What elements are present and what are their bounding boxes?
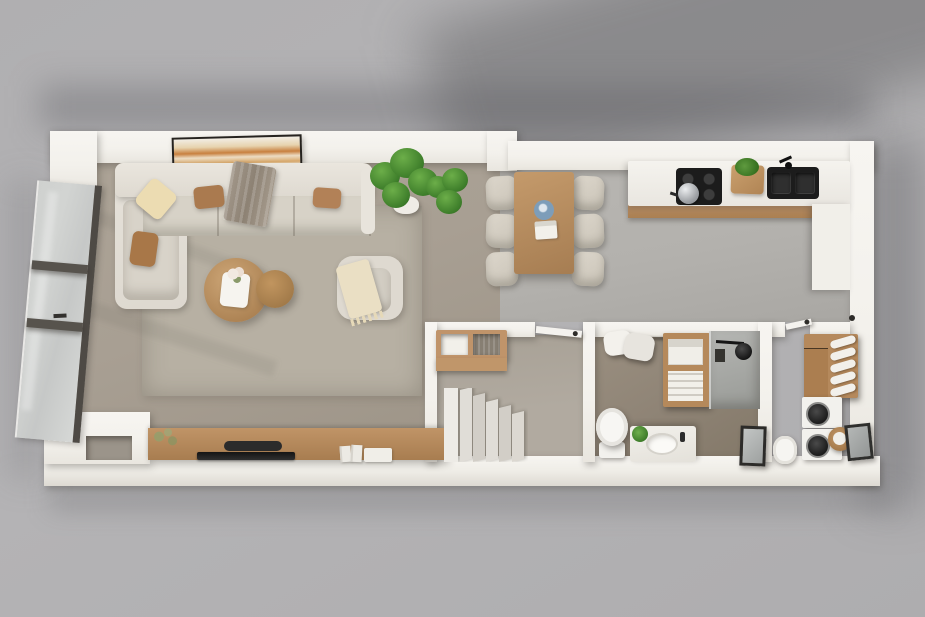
rolled-towels — [668, 371, 703, 401]
storage-box — [364, 448, 392, 462]
toilet — [773, 436, 797, 464]
stair-tread — [473, 393, 485, 462]
side-table — [256, 270, 294, 308]
wall-divider-bath — [583, 322, 595, 462]
sink-basin — [795, 172, 815, 194]
counter-wood-base — [628, 204, 818, 218]
potted-plant-small — [426, 168, 474, 220]
floor-plan-render — [0, 0, 925, 617]
soundbar — [224, 441, 282, 451]
door-handle-icon — [804, 319, 810, 325]
tv-console — [148, 428, 446, 460]
plant-leaves — [442, 168, 468, 192]
cast-shadow-top — [40, 86, 870, 128]
stair-tread — [512, 411, 524, 462]
dining-chair — [571, 175, 605, 211]
plant-leaves — [436, 190, 462, 214]
wicker-basket — [473, 334, 500, 355]
door-handle-icon — [573, 331, 578, 336]
stair-tread — [499, 405, 511, 462]
kitchen-sink — [767, 167, 819, 199]
storage-box — [441, 334, 468, 355]
vanity-plant — [632, 426, 648, 442]
stair-tread — [460, 388, 472, 462]
throw-pillow-tan — [312, 187, 341, 209]
papers — [534, 220, 557, 239]
entry-nook-recess — [86, 436, 132, 460]
cast-shadow-bottom — [50, 488, 890, 510]
washer — [802, 397, 842, 428]
dryer-drum — [806, 434, 830, 458]
dining-chair — [571, 251, 604, 286]
washer-drum — [806, 402, 830, 426]
shower-control — [715, 349, 725, 362]
dining-chair — [571, 213, 604, 248]
cooking-pot — [678, 183, 699, 204]
shower-head-icon — [735, 343, 752, 360]
throw-pillow-brown — [129, 230, 159, 267]
entry-door-handle-icon — [849, 315, 855, 321]
counter-return — [812, 204, 850, 290]
door-handle-icon — [53, 313, 66, 318]
basket-towel — [833, 432, 846, 445]
toilet — [596, 408, 628, 446]
bathroom-vanity — [630, 426, 696, 462]
faucet-icon — [785, 162, 792, 169]
folded-towels — [668, 339, 703, 365]
vanity-faucet — [680, 432, 685, 442]
books — [351, 445, 363, 463]
throw-pillow-brown — [193, 184, 225, 209]
console-plant — [150, 424, 180, 452]
blue-plate — [534, 200, 554, 220]
vanity-sink — [646, 433, 678, 455]
glass-reflection — [21, 191, 58, 411]
rolled-towel — [829, 383, 856, 398]
towel-shelf — [663, 333, 710, 407]
sink-basin — [771, 172, 791, 194]
leaning-mirror — [844, 423, 874, 462]
towel-rack-cabinet — [804, 334, 858, 398]
wall-shelf — [436, 330, 507, 360]
plant-leaves — [382, 182, 410, 208]
stair-tread — [486, 399, 498, 462]
wall-shelf-front — [436, 358, 507, 371]
leaning-mirror — [739, 426, 766, 467]
tv-panel — [197, 452, 295, 460]
drawer-cabinet — [804, 348, 828, 398]
hanging-towel — [622, 332, 656, 363]
flower-decor — [226, 266, 246, 286]
herb-plant — [735, 158, 759, 176]
stair-balustrade — [444, 388, 458, 462]
staircase — [444, 388, 528, 462]
